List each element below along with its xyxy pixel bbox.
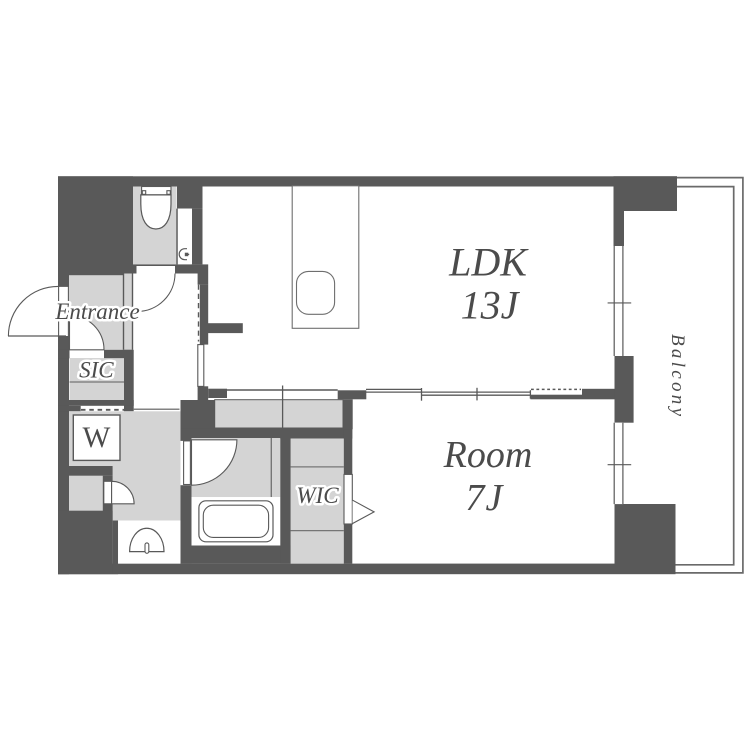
svg-text:7J: 7J — [465, 477, 504, 519]
svg-text:13J: 13J — [461, 283, 521, 328]
svg-text:SIC: SIC — [79, 358, 114, 383]
svg-text:Entrance: Entrance — [54, 299, 139, 324]
svg-text:W: W — [82, 422, 110, 454]
svg-text:Room: Room — [443, 434, 533, 476]
svg-text:WIC: WIC — [296, 483, 339, 508]
svg-text:LDK: LDK — [448, 240, 529, 285]
